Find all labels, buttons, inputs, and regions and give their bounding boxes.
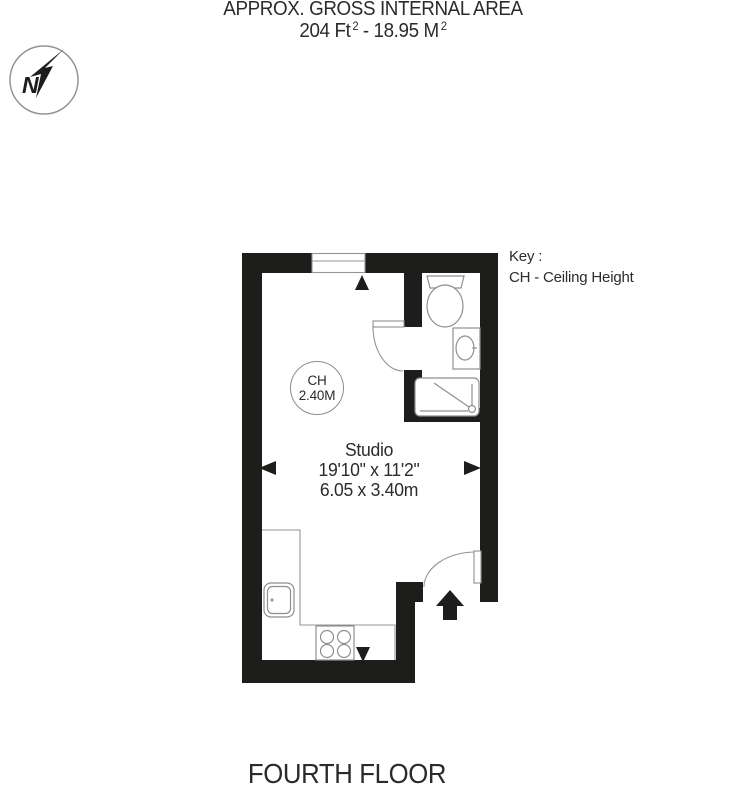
room-dimensions-metric: 6.05 x 3.40m [319, 480, 420, 500]
wall-bottom-jog [396, 600, 415, 683]
bathroom-door [373, 321, 404, 371]
room-label: Studio 19'10" x 11'2" 6.05 x 3.40m [319, 440, 420, 500]
dimension-arrow-up [355, 275, 369, 290]
floor-plan: N [0, 0, 731, 800]
dimension-arrow-down [356, 647, 370, 662]
entry-door-leaf [474, 551, 481, 583]
floor-label: FOURTH FLOOR [248, 758, 446, 790]
entry-arrow-icon [436, 590, 464, 620]
ceiling-height-value: 2.40M [299, 388, 336, 403]
wall-entry-left [396, 582, 423, 602]
room-name: Studio [319, 440, 420, 460]
key: Key : CH - Ceiling Height [509, 246, 634, 288]
wall-bottom [242, 660, 415, 683]
entry-door [424, 551, 481, 587]
bathroom-sink-icon [453, 328, 480, 369]
wall-bathroom-upper [404, 273, 422, 327]
bathroom-door-leaf [373, 321, 404, 327]
ceiling-height-label: CH [307, 373, 326, 388]
room-dimensions-imperial: 19'10" x 11'2" [319, 460, 420, 480]
hob-icon [316, 626, 354, 660]
shower-icon [415, 378, 479, 416]
toilet-icon [427, 276, 464, 327]
compass-north-letter: N [22, 72, 39, 98]
ceiling-height-badge: CH 2.40M [290, 361, 344, 415]
window-icon [312, 254, 365, 273]
wall-right [480, 253, 498, 602]
kitchen-sink-icon [264, 583, 294, 617]
north-compass-icon: N [10, 46, 78, 114]
wall-top-right [365, 253, 498, 273]
key-label: Key : [509, 246, 634, 267]
floorplan-page: APPROX. GROSS INTERNAL AREA 204 Ft2-18.9… [0, 0, 731, 800]
key-entry-ceiling-height: CH - Ceiling Height [509, 267, 634, 288]
dimension-arrow-right [464, 461, 481, 475]
